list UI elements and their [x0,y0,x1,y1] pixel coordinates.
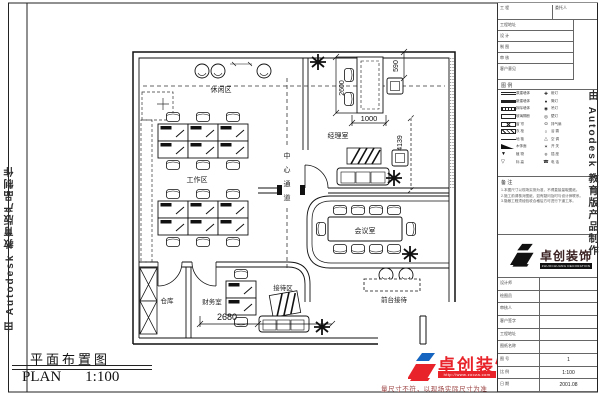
room-label-manager: 经理室 [328,131,349,140]
title-block: 工 程 委托人 工程地址 设 计 制 图 审 核 客户意见 图 例 原建墙体✚射… [497,3,597,392]
tb-row-label: 客户意见 [500,66,516,72]
tb-field-label: 绘图员 [498,291,540,303]
legend-icon: ◉ [541,106,551,112]
autodesk-watermark-right: 由 Autodesk 教育版产品制作 [584,90,599,310]
tb-field-label: 审核人 [498,303,540,315]
tb-row-label: 工 程 [500,5,509,11]
legend-label: 标 高 [516,160,541,165]
aisle-char: 中 [284,151,291,160]
legend-symbol [501,100,516,104]
tb-field-label: 设计师 [498,278,540,290]
aisle-char: 道 [284,193,291,202]
legend-icon: ⌾ [541,152,551,157]
brand-logo-icon [510,243,536,269]
plan-scale: 1:100 [85,369,119,385]
tb-field-label: 比 例 [498,367,540,379]
note-line: 3.隐蔽工程须经验收合格后方可进行下道工序。 [501,199,594,205]
legend-title: 图 例 [501,82,512,89]
brand-logo-icon [408,352,438,384]
legend-icon: △ [541,136,551,142]
room-label-reception: 接待区 [273,283,293,292]
tb-field-value: 1 [540,357,597,363]
tb-row-label: 制 图 [500,44,509,50]
legend-icon: ○ [541,129,551,134]
legend-label: 窗 帘 [516,122,541,127]
plan-label: PLAN [22,369,61,385]
legend-label: 新建墙体 [516,99,541,104]
legend-symbol: ▼ [501,152,516,157]
legend-label: 植 物 [516,152,541,157]
disclaimer-text: 量尺寸不符，以现场实际尺寸为准 [381,383,488,393]
notes-block: 备 注 1.本图尺寸以现场实测为准，不得直接量取图纸。 2.施工前请核对图纸，如… [498,177,597,235]
front-desk [364,268,420,291]
legend-symbol [501,92,516,95]
plant [402,246,418,262]
aisle-char: 通 [284,179,291,188]
dim-4139: 4139 [397,135,404,151]
legend-symbol: ▽ [501,160,516,165]
titleblock-rows: 设计师 绘图员 审核人 客户签字 工程地址 图纸名称 图 号1 比 例1:100… [498,278,597,392]
plant [310,54,326,70]
dim-2600: 2600 [339,80,346,96]
legend-icon: ☎ [541,159,551,165]
room-label-storeroom: 仓库 [161,296,175,305]
notes-title: 备 注 [501,179,594,186]
legend-label: 原建墙体 [516,91,541,96]
tb-field-label: 工程地址 [498,329,540,341]
legend-symbol [501,144,514,149]
plant [314,319,330,335]
legend-icon: ✚ [541,91,551,97]
legend-icon: ● [541,99,551,104]
room-label-leisure: 休闲区 [211,85,232,94]
room-label-finance: 财务室 [202,297,222,306]
room-label-meeting: 会议室 [355,226,376,235]
room-label-frontdesk: 前台接待 [381,295,408,304]
legend-label: 木饰面 [516,144,541,149]
tb-row-label: 审 核 [500,55,509,61]
legend-table: 原建墙体✚射灯 新建墙体●筒灯 拆除墙体◉吊灯 玻璃隔断◎壁灯 窗 帘⊙排气扇 … [498,90,597,166]
leisure-stools [195,62,271,78]
tb-field-label: 图 号 [498,354,540,366]
legend-label: 地 毯 [516,137,541,142]
legend-symbol [501,114,516,119]
tb-row-label: 委托人 [552,5,567,20]
autodesk-watermark-left: 由 Autodesk 教育版产品制作 [3,122,18,332]
tb-field-label: 日 期 [498,379,540,391]
drawing-subtitle: PLAN1:100 [22,369,119,386]
legend-label: 衣 柜 [516,129,541,134]
legend-icon: ✶ [541,144,551,150]
dim-1000: 1000 [361,114,378,123]
room-label-work: 工作区 [187,175,208,184]
legend-label: 拆除墙体 [516,106,541,111]
tb-field-value: 2001.08 [540,382,597,388]
legend-symbol [501,107,516,111]
legend-label: 玻璃隔断 [516,114,541,119]
tb-field-value: 1:100 [540,370,597,376]
tb-field-label: 图纸名称 [498,341,540,353]
legend-symbol [501,129,516,134]
legend-icon: ⊙ [541,121,551,127]
tb-row-label: 工程地址 [500,22,516,28]
work-cluster-1 [158,113,248,170]
tb-field-label: 客户签字 [498,316,540,328]
legend-symbol [501,122,516,127]
centre-aisle: 中 心 通 道 [284,78,291,270]
legend-symbol [501,139,516,140]
dim-590: 590 [393,60,400,72]
legend-icon: ◎ [541,114,551,120]
work-cluster-2 [158,190,248,247]
reception-area [259,291,309,332]
brand-url: http://www.zocza.com [438,371,496,378]
tb-row-label: 设 计 [500,33,509,39]
storeroom-shelves [140,268,157,334]
aisle-char: 心 [284,166,291,174]
dim-2680: 2680 [217,312,237,322]
titleblock-logo: 卓创装饰 ZHUOCHUANG DECORATION [498,235,597,278]
